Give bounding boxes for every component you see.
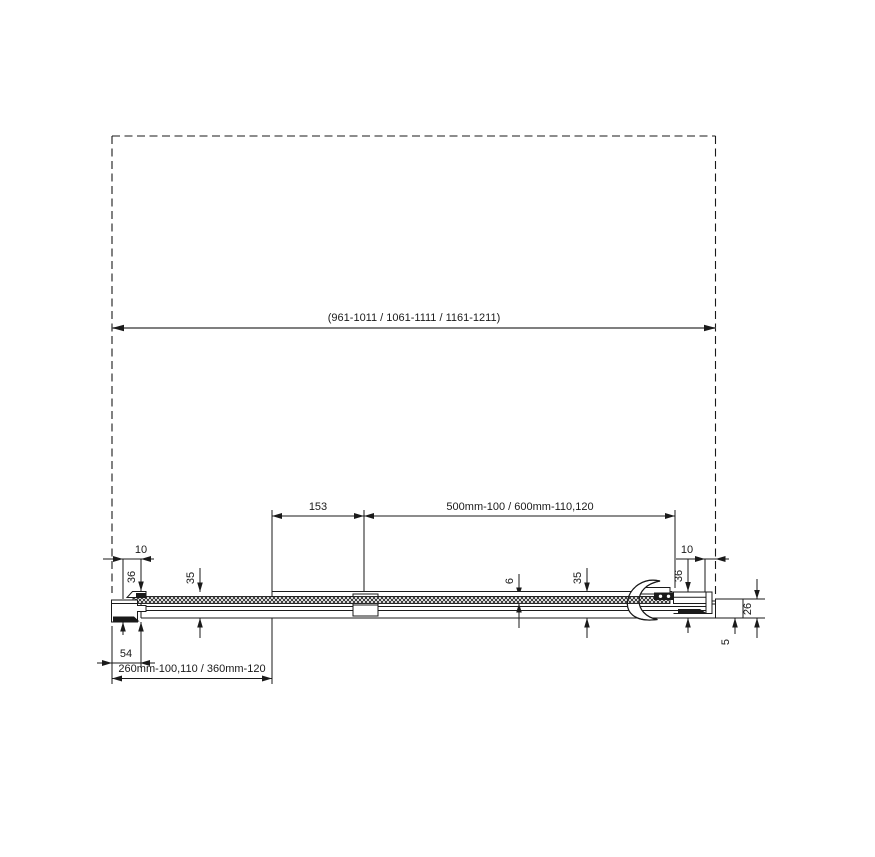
dim-glass-thickness-label: 6 <box>504 578 516 584</box>
dimension-end-profile-depth: 26 <box>742 579 765 638</box>
dimension-fixed-panel-width: 260mm-100,110 / 360mm-120 <box>112 618 272 684</box>
end-cap-plate <box>716 599 744 618</box>
drawing-canvas: (961-1011 / 1061-1111 / 1161-1211) 153 5… <box>0 0 875 857</box>
dim-rail-depth-left-label: 35 <box>185 572 197 584</box>
glass-panel <box>133 597 670 604</box>
technical-drawing: (961-1011 / 1061-1111 / 1161-1211) 153 5… <box>0 0 875 857</box>
bottom-rails <box>141 604 743 619</box>
dim-wall-profile-width-label: 54 <box>120 648 132 660</box>
dim-end-profile-depth-label: 26 <box>742 603 754 615</box>
dim-bottom-overlap-label: 5 <box>720 639 732 645</box>
dim-fixed-panel-width-label: 260mm-100,110 / 360mm-120 <box>118 663 265 675</box>
top-rail <box>272 592 672 597</box>
dim-overall-width-label: (961-1011 / 1061-1111 / 1161-1211) <box>328 312 500 324</box>
dim-wall-clearance-right-label: 10 <box>681 544 693 556</box>
dim-wall-profile-height-right-label: 36 <box>673 570 685 582</box>
dim-rail-depth-right-label: 35 <box>572 572 584 584</box>
installation-outline <box>112 136 716 598</box>
dim-top-rail-inset-label: 153 <box>309 501 327 513</box>
door-profile-assembly <box>112 580 744 622</box>
dim-wall-profile-height-left-label: 36 <box>126 571 138 583</box>
dimension-overall-width: (961-1011 / 1061-1111 / 1161-1211) <box>112 312 716 331</box>
dimension-top-rail-inset: 153 <box>272 501 364 594</box>
dimension-wall-clearance-right: 10 <box>676 544 729 592</box>
dimension-bottom-overlap: 5 <box>720 618 738 645</box>
dim-door-leaf-width-label: 500mm-100 / 600mm-110,120 <box>446 501 593 513</box>
dim-wall-clearance-left-label: 10 <box>135 544 147 556</box>
